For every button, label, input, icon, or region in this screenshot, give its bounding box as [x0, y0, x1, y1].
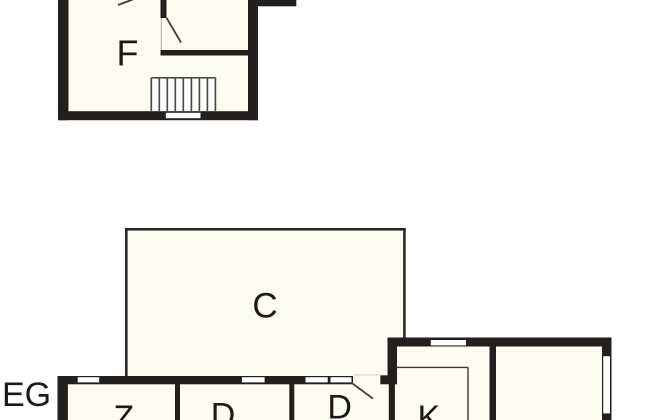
svg-text:F: F — [117, 33, 139, 74]
svg-text:K: K — [418, 399, 441, 420]
svg-text:Z: Z — [113, 399, 134, 420]
svg-text:C: C — [252, 287, 277, 326]
svg-text:D: D — [327, 389, 352, 420]
svg-text:EG: EG — [2, 376, 51, 414]
svg-text:D: D — [211, 397, 236, 420]
